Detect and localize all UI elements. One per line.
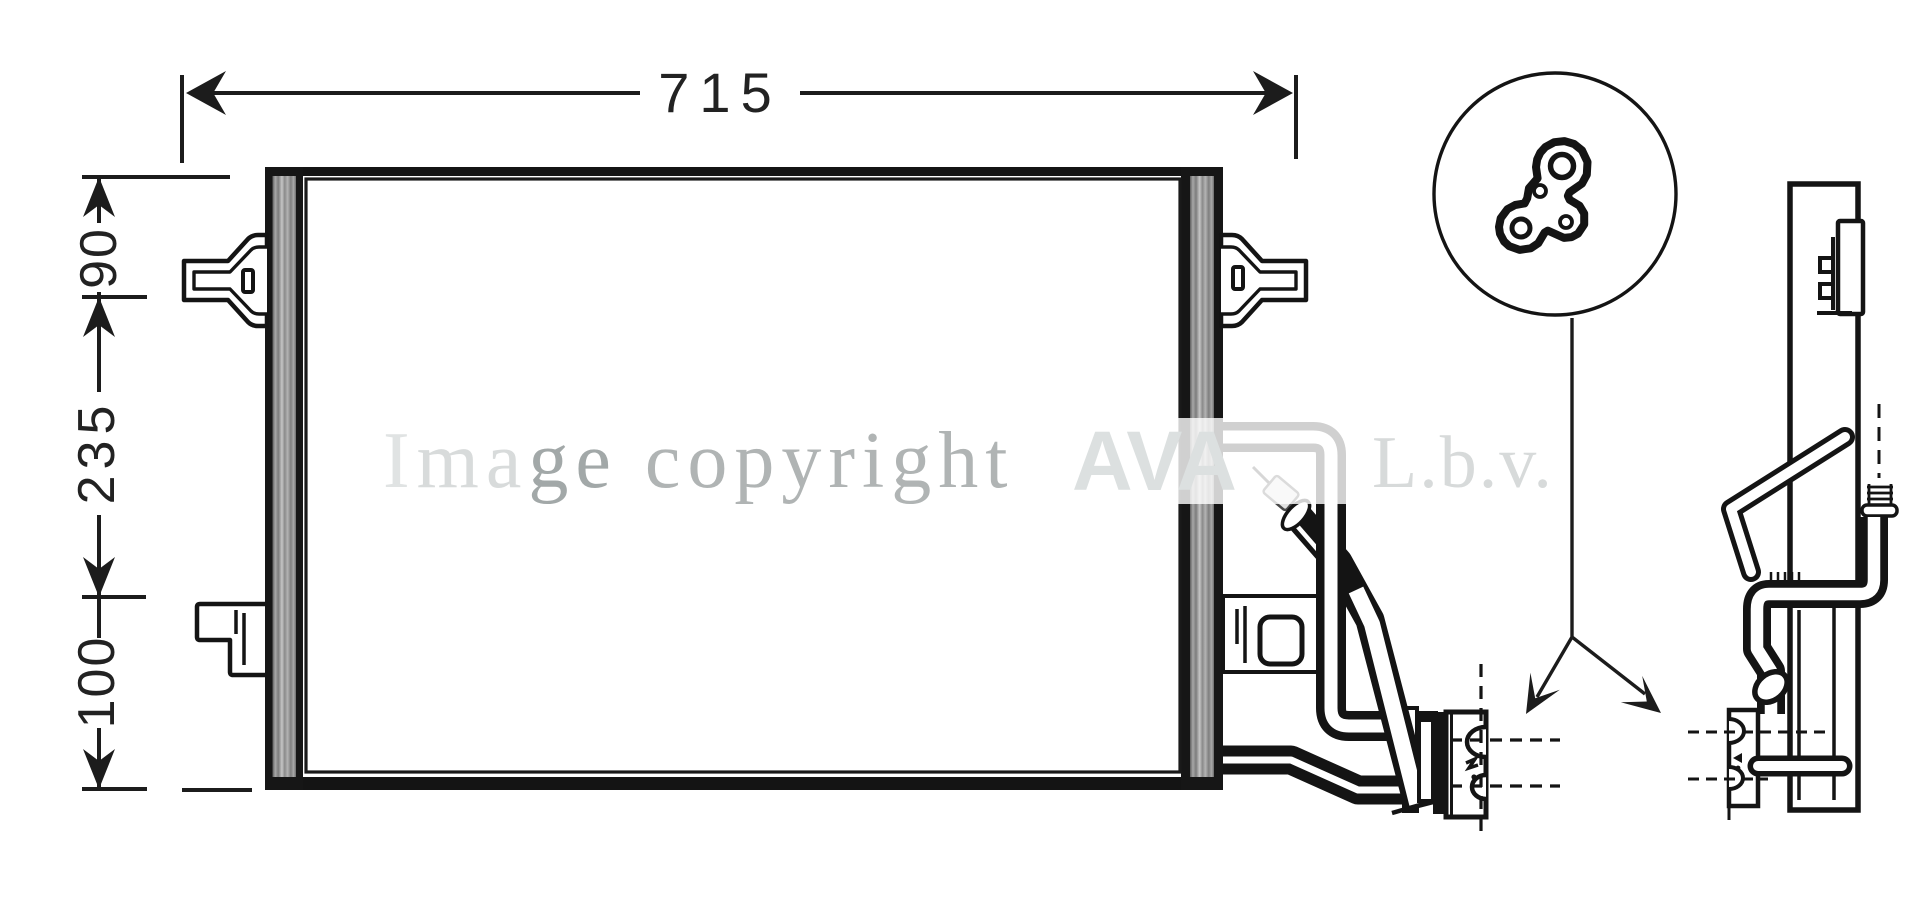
svg-text:90: 90	[70, 227, 128, 289]
svg-text:Image copyright: Image copyright	[383, 417, 1015, 505]
svg-text:L.b.v.: L.b.v.	[1372, 422, 1554, 504]
svg-text:AVA: AVA	[1072, 414, 1237, 508]
svg-text:715: 715	[658, 61, 781, 124]
svg-text:100: 100	[68, 636, 126, 729]
svg-text:235: 235	[68, 400, 126, 505]
